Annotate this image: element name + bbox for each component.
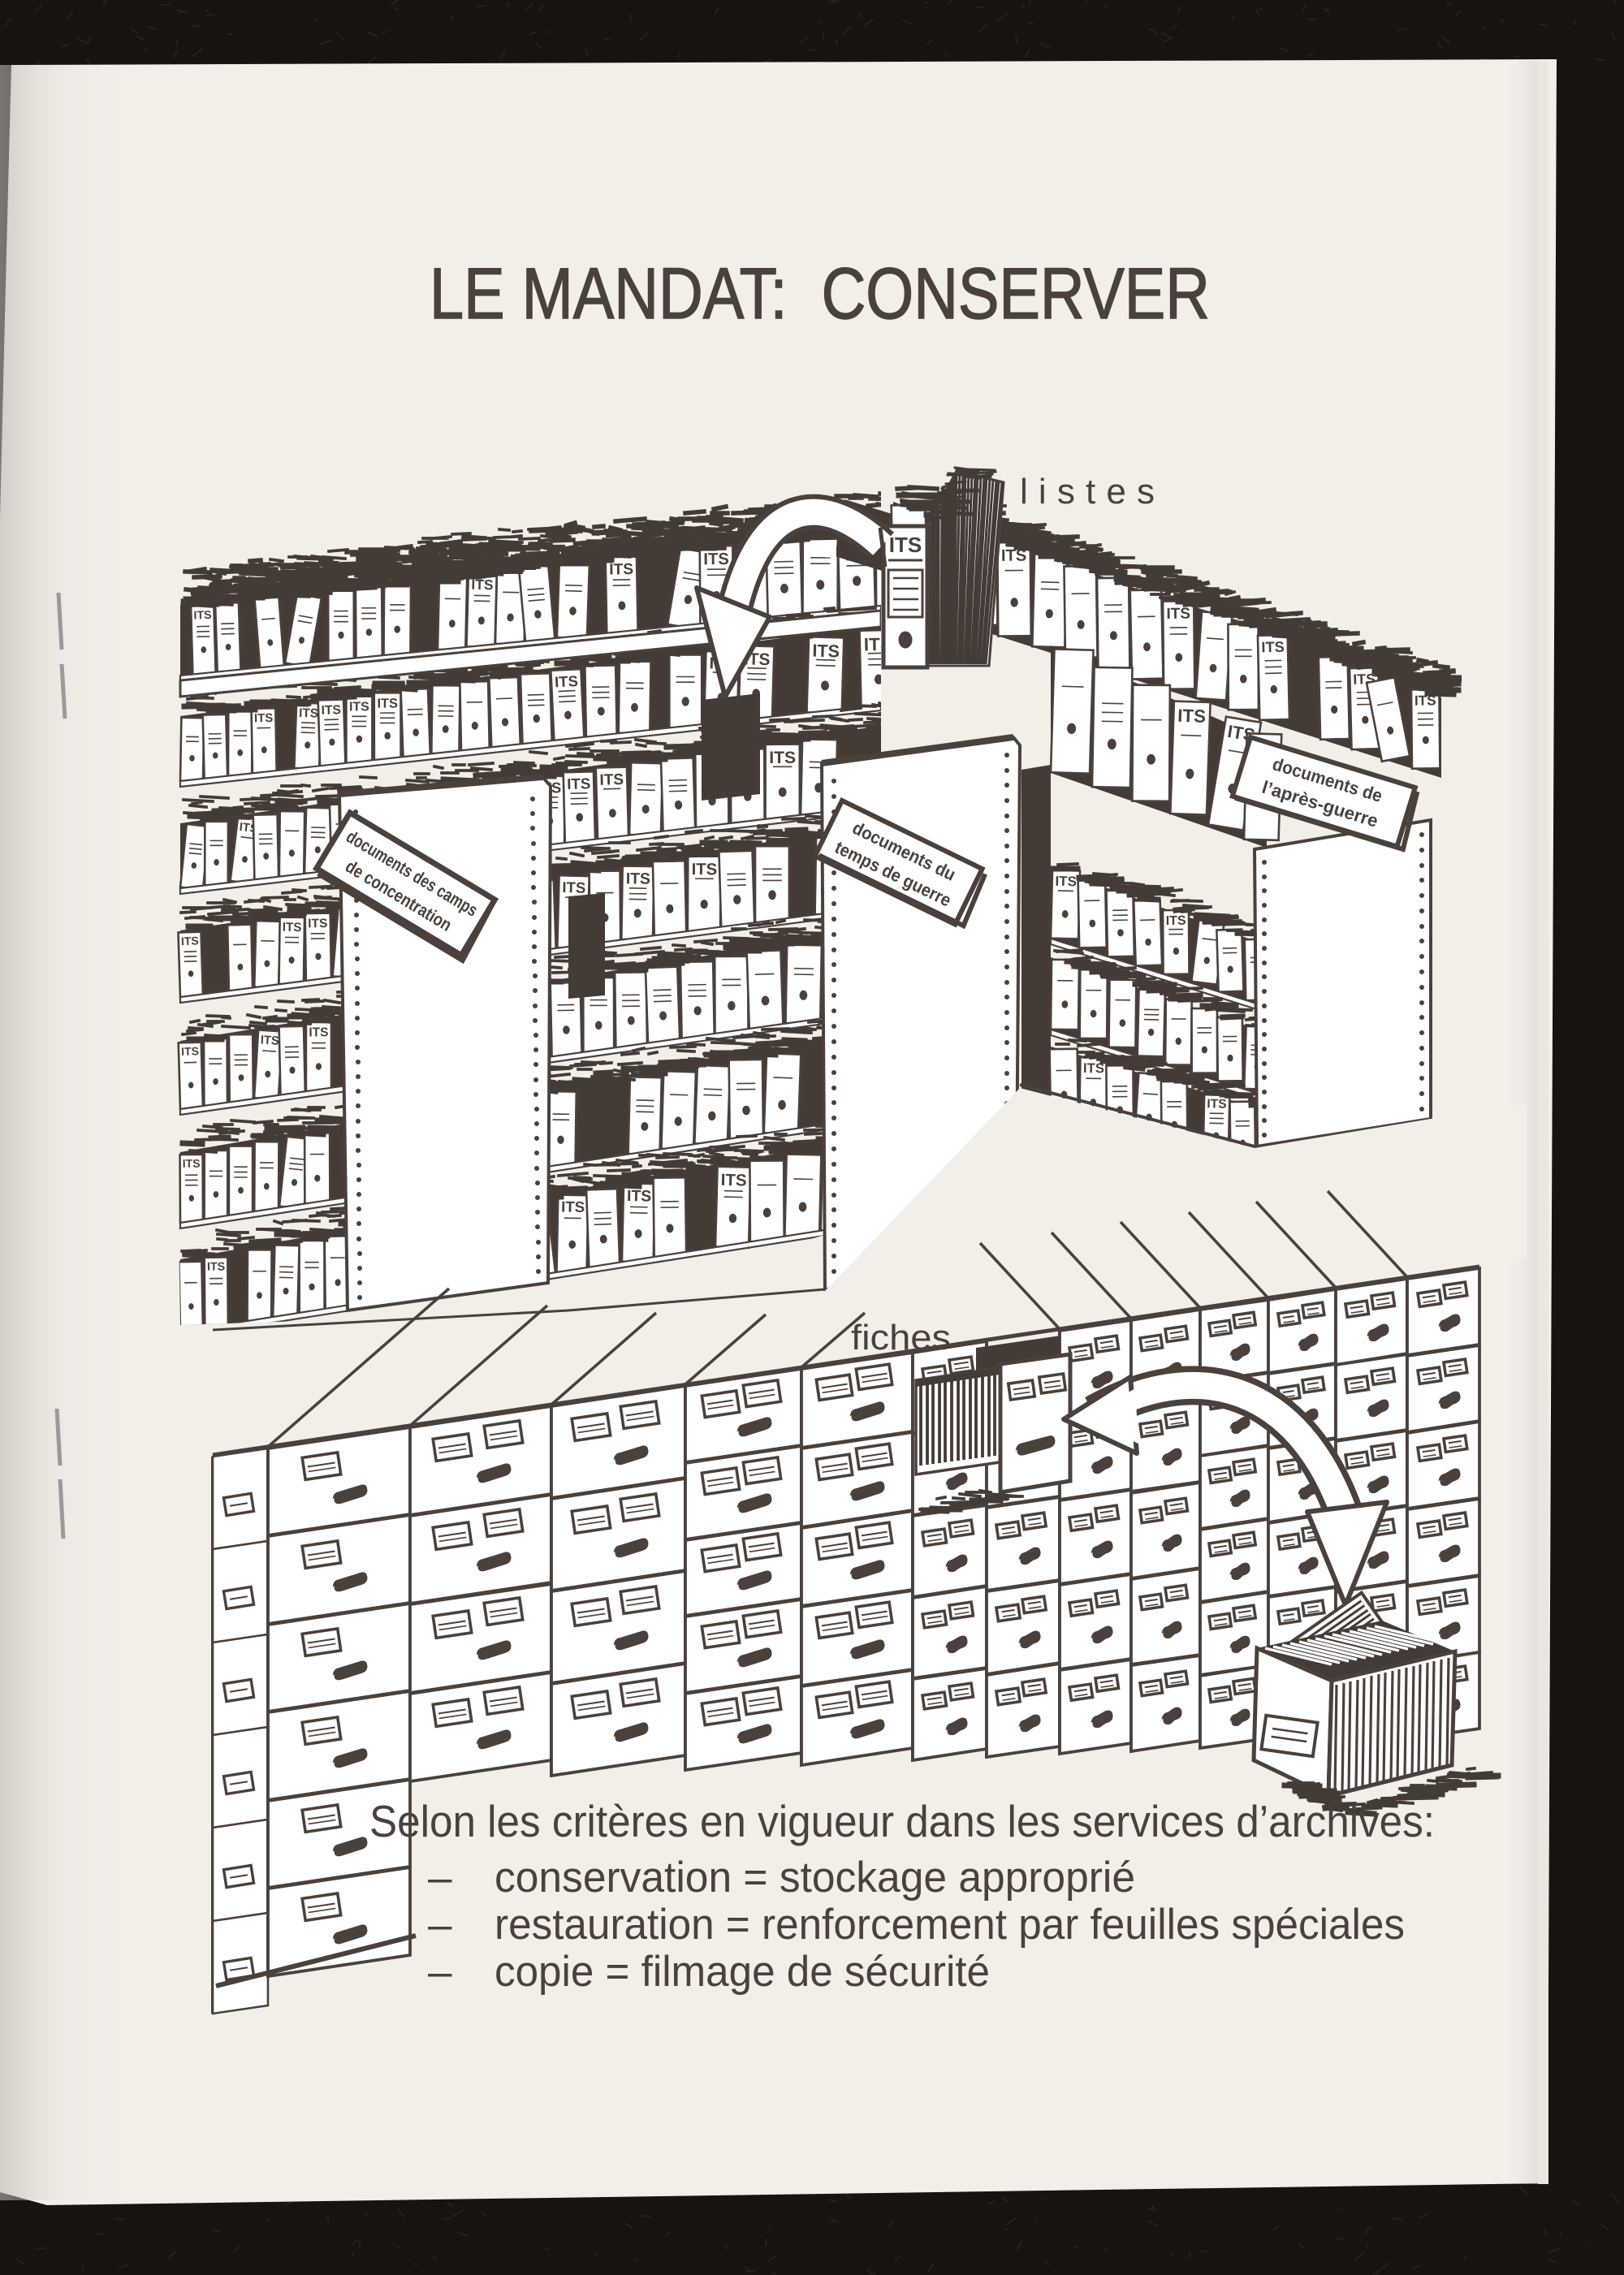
- svg-text:ITS: ITS: [299, 706, 319, 721]
- svg-text:ITS: ITS: [703, 550, 729, 568]
- svg-text:restauration = renforcement pa: restauration = renforcement par feuilles…: [495, 1901, 1405, 1949]
- svg-text:ITS: ITS: [720, 1171, 746, 1190]
- svg-text:ITS: ITS: [377, 697, 398, 711]
- svg-text:ITS: ITS: [260, 1034, 279, 1047]
- svg-text:ITS: ITS: [308, 917, 327, 930]
- svg-text:ITS: ITS: [1166, 914, 1186, 928]
- svg-text:ITS: ITS: [567, 775, 591, 792]
- svg-text:LE MANDAT: CONSERVER: LE MANDAT: CONSERVER: [430, 253, 1210, 334]
- svg-text:ITS: ITS: [769, 749, 796, 767]
- svg-text:ITS: ITS: [321, 703, 341, 718]
- svg-text:ITS: ITS: [1166, 606, 1190, 623]
- svg-text:fiches: fiches: [851, 1318, 951, 1358]
- svg-text:ITS: ITS: [1261, 638, 1285, 656]
- svg-text:ITS: ITS: [254, 712, 274, 725]
- svg-text:–: –: [428, 1948, 452, 1996]
- svg-text:ITS: ITS: [349, 701, 369, 714]
- svg-text:ITS: ITS: [812, 641, 840, 662]
- svg-text:ITS: ITS: [692, 861, 718, 878]
- svg-text:Selon les critères en vigueur: Selon les critères en vigueur dans les s…: [369, 1796, 1435, 1846]
- svg-text:ITS: ITS: [609, 561, 633, 579]
- svg-text:ITS: ITS: [889, 533, 922, 557]
- svg-text:ITS: ITS: [283, 921, 302, 935]
- svg-text:ITS: ITS: [1055, 874, 1077, 890]
- svg-text:ITS: ITS: [1207, 1097, 1227, 1111]
- svg-text:ITS: ITS: [181, 1044, 199, 1058]
- svg-text:ITS: ITS: [183, 1157, 201, 1170]
- svg-text:ITS: ITS: [555, 672, 579, 690]
- svg-text:ITS: ITS: [627, 1187, 652, 1206]
- svg-text:ITS: ITS: [626, 870, 651, 887]
- svg-text:ITS: ITS: [207, 1261, 225, 1274]
- svg-text:ITS: ITS: [561, 1198, 585, 1215]
- svg-text:–: –: [428, 1854, 452, 1902]
- svg-text:ITS: ITS: [193, 609, 212, 623]
- svg-text:copie = filmage de sécurité: copie = filmage de sécurité: [495, 1948, 990, 1996]
- svg-text:ITS: ITS: [1177, 706, 1206, 727]
- svg-text:conservation = stockage approp: conservation = stockage approprié: [495, 1854, 1135, 1902]
- svg-text:ITS: ITS: [181, 934, 199, 948]
- svg-text:–: –: [428, 1901, 452, 1949]
- svg-text:ITS: ITS: [562, 878, 585, 896]
- svg-text:ITS: ITS: [309, 1025, 328, 1039]
- svg-text:listes: listes: [1020, 472, 1164, 512]
- svg-text:ITS: ITS: [599, 771, 624, 789]
